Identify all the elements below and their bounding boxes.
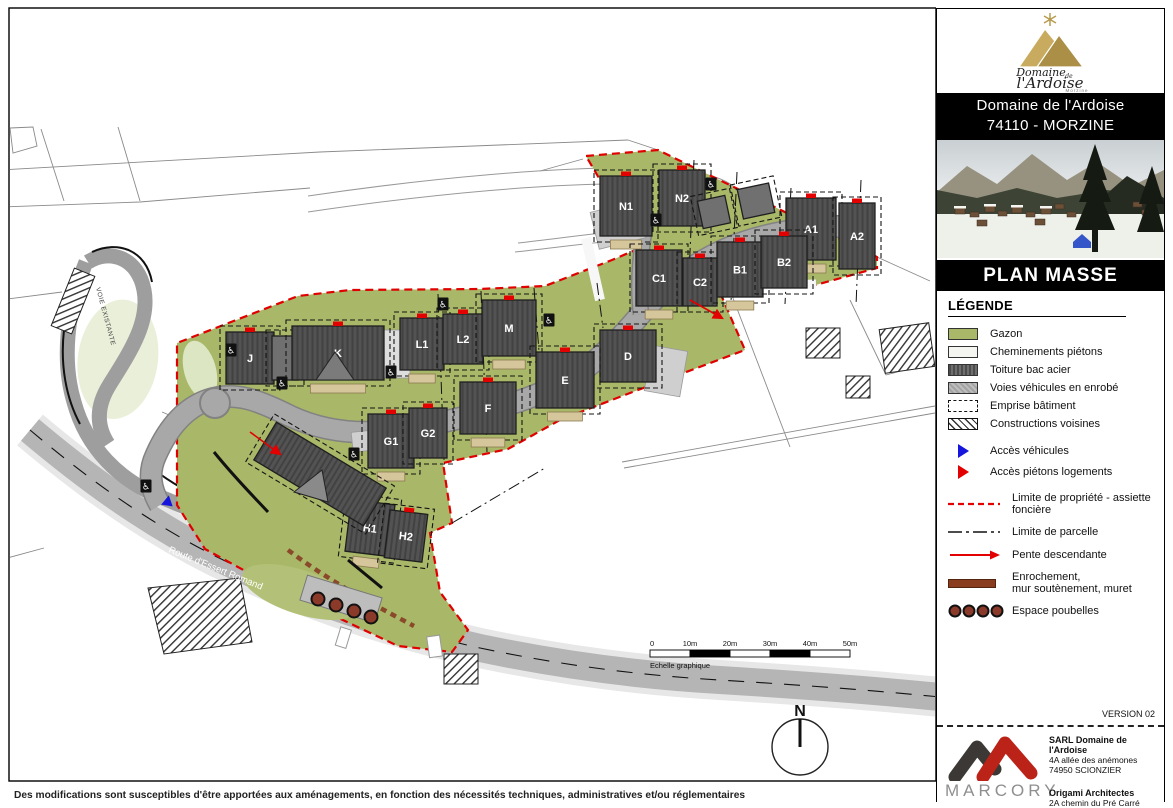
property-limit-line <box>948 500 1000 508</box>
svg-text:L2: L2 <box>457 334 470 346</box>
legend-item: Emprise bâtiment <box>948 399 1158 413</box>
legend-item-label: Constructions voisines <box>990 418 1100 430</box>
title-block: Domaine de l'Ardoise Morzine Domaine de … <box>936 8 1165 802</box>
architect-name: Origami Architectes <box>1049 788 1164 798</box>
svg-text:F: F <box>485 403 492 415</box>
pedestrian-access-icon <box>958 465 969 479</box>
legend-item: Toiture bac acier <box>948 363 1158 377</box>
building-D: D <box>594 324 662 388</box>
legend-item-label: Accès piétons logements <box>990 466 1112 478</box>
svg-text:H2: H2 <box>398 530 413 544</box>
wheelchair-icon: ♿ <box>651 214 662 227</box>
wheelchair-icon: ♿ <box>141 480 152 493</box>
domaine-ardoise-logo-icon: Domaine de l'Ardoise Morzine <box>937 9 1164 93</box>
legend-item: Limite de propriété - assiette foncière <box>948 492 1158 516</box>
legend-swatch-emprise <box>948 400 978 412</box>
marcory-logo-icon <box>947 731 1047 781</box>
legend-swatch-gazon <box>948 328 978 340</box>
legend-swatch-chemin <box>948 346 978 358</box>
legend-item-label: Pente descendante <box>1012 549 1107 561</box>
legend-title: LÉGENDE <box>948 298 1126 317</box>
client-name: SARL Domaine de l'Ardoise <box>1049 735 1164 755</box>
svg-text:N2: N2 <box>675 193 689 205</box>
svg-text:♿: ♿ <box>652 216 660 226</box>
building-G2: G2 <box>403 402 453 464</box>
building-J: J <box>220 326 280 390</box>
svg-text:♿: ♿ <box>545 316 553 326</box>
svg-text:Morzine: Morzine <box>1065 88 1088 93</box>
svg-text:20m: 20m <box>723 639 738 648</box>
client-addr1: 4A allée des anémones <box>1049 755 1164 765</box>
building-B2: B2 <box>755 230 813 294</box>
wheelchair-icon: ♿ <box>277 377 288 390</box>
footer-addresses: SARL Domaine de l'Ardoise 4A allée des a… <box>1049 735 1164 808</box>
svg-text:B1: B1 <box>733 265 747 277</box>
svg-text:C1: C1 <box>652 273 666 285</box>
address-banner: Domaine de l'Ardoise 74110 - MORZINE <box>937 93 1164 140</box>
wheelchair-icon: ♿ <box>386 366 397 379</box>
building-A2: A2 <box>833 197 881 275</box>
legend-item: Pente descendante <box>948 548 1158 562</box>
legend-item: Accès véhicules <box>948 444 1158 458</box>
architect-addr: 2A chemin du Pré Carré <box>1049 798 1164 808</box>
legend-item: Gazon <box>948 327 1158 341</box>
svg-text:J: J <box>247 353 253 365</box>
svg-text:N: N <box>794 703 806 720</box>
footer-separator <box>937 725 1164 727</box>
svg-text:30m: 30m <box>763 639 778 648</box>
svg-text:40m: 40m <box>803 639 818 648</box>
svg-text:N1: N1 <box>619 201 633 213</box>
svg-text:♿: ♿ <box>227 346 235 356</box>
svg-text:♿: ♿ <box>439 300 447 310</box>
wheelchair-icon: ♿ <box>349 448 360 461</box>
svg-text:♿: ♿ <box>707 180 715 190</box>
legend-item: Enrochement, mur soutènement, muret <box>948 571 1158 595</box>
client-addr2: 74950 SCIONZIER <box>1049 765 1164 775</box>
wheelchair-icon: ♿ <box>706 178 717 191</box>
svg-text:♿: ♿ <box>142 482 150 492</box>
svg-text:50m: 50m <box>843 639 858 648</box>
svg-text:G1: G1 <box>384 436 399 448</box>
svg-text:0: 0 <box>650 639 654 648</box>
legend-item-label: Espace poubelles <box>1012 605 1099 617</box>
svg-text:G2: G2 <box>421 428 436 440</box>
wheelchair-icon: ♿ <box>544 314 555 327</box>
svg-text:M: M <box>504 323 513 335</box>
trash-circles-icon <box>948 604 1004 618</box>
site-photo <box>937 140 1164 258</box>
wheelchair-icon: ♿ <box>438 298 449 311</box>
svg-text:E: E <box>561 375 568 387</box>
legend-item-label: Voies véhicules en enrobé <box>990 382 1118 394</box>
svg-text:L1: L1 <box>416 339 429 351</box>
scale-caption: Echelle graphique <box>650 661 710 670</box>
svg-text:A2: A2 <box>850 231 864 243</box>
legend-item: Limite de parcelle <box>948 525 1158 539</box>
disclaimer: Des modifications sont susceptibles d'êt… <box>14 790 745 801</box>
svg-text:B2: B2 <box>777 257 791 269</box>
legend-item-label: Accès véhicules <box>990 445 1069 457</box>
svg-text:♿: ♿ <box>278 379 286 389</box>
legend-item-label: Limite de propriété - assiette foncière <box>1012 492 1158 516</box>
legend-item: Espace poubelles <box>948 604 1158 618</box>
legend-item: Cheminements piétons <box>948 345 1158 359</box>
legend-item: Voies véhicules en enrobé <box>948 381 1158 395</box>
project-name: Domaine de l'Ardoise <box>937 96 1164 116</box>
legend-swatch-enrobe <box>948 382 978 394</box>
vehicle-access-icon <box>958 444 969 458</box>
legend-swatch-toiture <box>948 364 978 376</box>
plan-title: PLAN MASSE <box>937 260 1164 291</box>
legend-item-label: Limite de parcelle <box>1012 526 1098 538</box>
legend-item: Constructions voisines <box>948 417 1158 431</box>
legend-item-label: Enrochement, mur soutènement, muret <box>1012 571 1132 595</box>
building-L2: L2 <box>437 308 489 370</box>
version-label: VERSION 02 <box>1102 709 1155 719</box>
legend: LÉGENDE GazonCheminements piétonsToiture… <box>948 297 1158 627</box>
plan-masse-sheet: { "sidebar": { "logo": {"name": "Domaine… <box>0 0 1173 801</box>
legend-swatch-voisines <box>948 418 978 430</box>
marcory-wordmark: MARCORY <box>945 781 1060 801</box>
site-plan-map: N1N2A1A2C1C2B1B2L1L2MDEFG1G2H1H2JK ♿♿♿♿♿… <box>0 0 936 801</box>
svg-text:C2: C2 <box>693 277 707 289</box>
legend-item-label: Cheminements piétons <box>990 346 1103 358</box>
svg-text:♿: ♿ <box>350 450 358 460</box>
project-logo: Domaine de l'Ardoise Morzine <box>937 9 1164 93</box>
legend-item-label: Toiture bac acier <box>990 364 1071 376</box>
svg-text:D: D <box>624 351 632 363</box>
wheelchair-icon: ♿ <box>226 344 237 357</box>
slope-arrow-icon <box>948 550 1000 560</box>
svg-text:10m: 10m <box>683 639 698 648</box>
parcel-limit-line <box>948 528 1000 536</box>
project-city: 74110 - MORZINE <box>937 116 1164 136</box>
legend-item: Accès piétons logements <box>948 465 1158 479</box>
legend-item-label: Gazon <box>990 328 1022 340</box>
svg-text:♿: ♿ <box>387 368 395 378</box>
wall-bar-icon <box>948 579 996 588</box>
legend-item-label: Emprise bâtiment <box>990 400 1076 412</box>
